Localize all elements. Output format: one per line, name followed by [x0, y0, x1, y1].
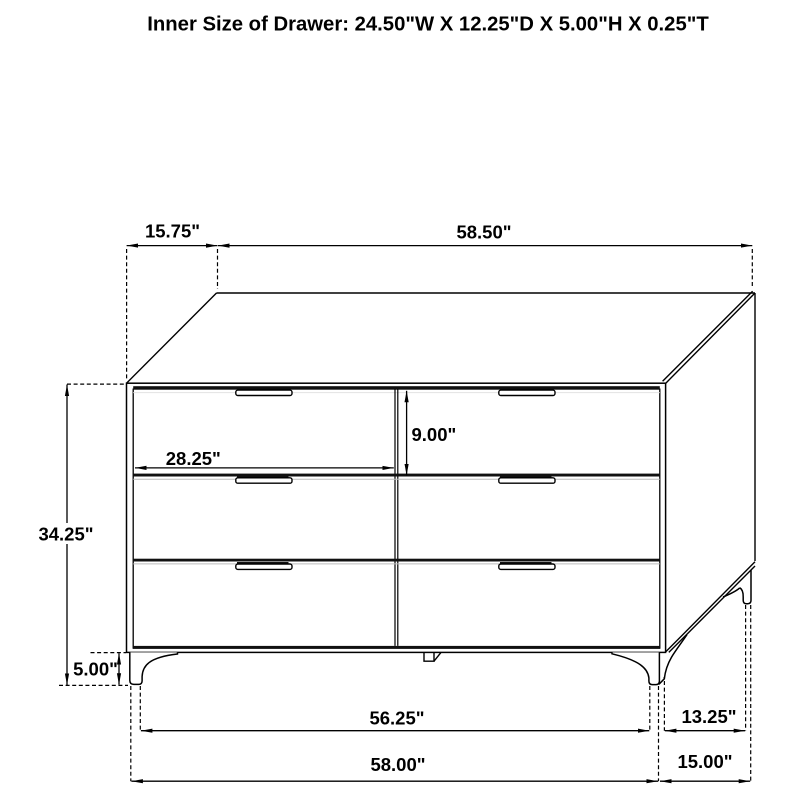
svg-text:56.25": 56.25"	[369, 708, 424, 729]
svg-text:13.25": 13.25"	[681, 706, 736, 727]
svg-text:15.75": 15.75"	[145, 220, 200, 241]
svg-text:9.00": 9.00"	[412, 424, 457, 445]
svg-text:58.00": 58.00"	[370, 754, 425, 775]
svg-text:58.50": 58.50"	[456, 221, 511, 242]
svg-text:Inner Size of Drawer: 24.50"W: Inner Size of Drawer: 24.50"W X 12.25"D …	[147, 14, 709, 36]
svg-text:15.00": 15.00"	[677, 751, 732, 772]
svg-text:28.25": 28.25"	[166, 448, 221, 469]
svg-text:34.25": 34.25"	[38, 524, 93, 545]
svg-text:5.00": 5.00"	[73, 659, 118, 680]
